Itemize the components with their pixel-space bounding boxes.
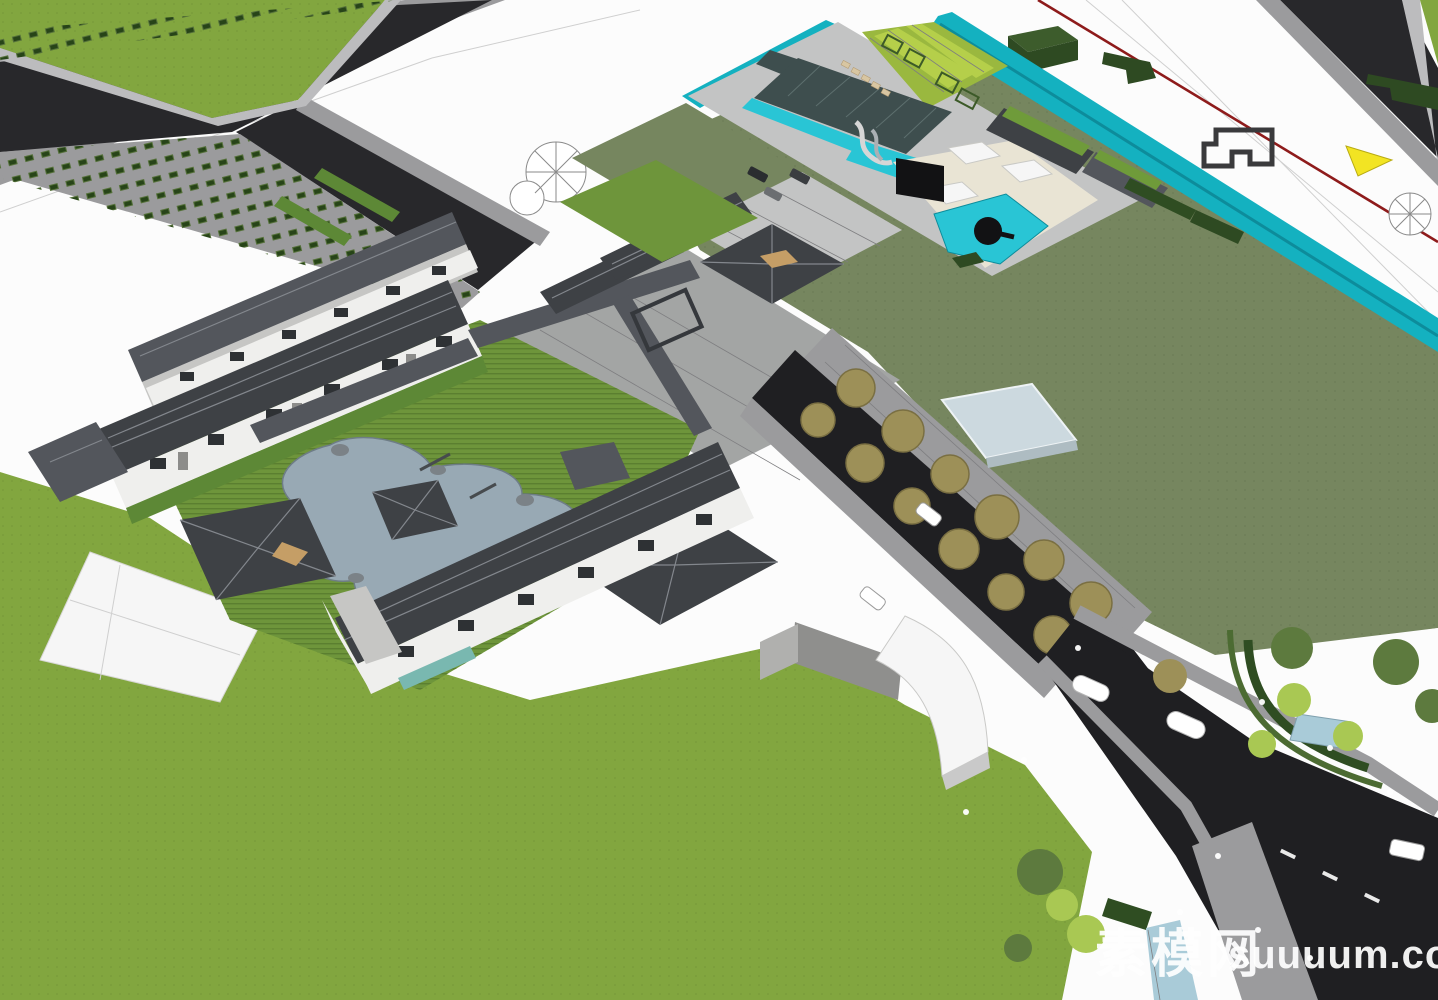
plan-tree-symbol [1389,193,1431,235]
watermark: 素模网 suuuum.com [1095,926,1438,984]
site-plan-render: 素模网 suuuum.com [0,0,1438,1000]
watermark-latin: suuuum.com [1228,933,1438,977]
render-viewport: 素模网 suuuum.com [0,0,1438,1000]
